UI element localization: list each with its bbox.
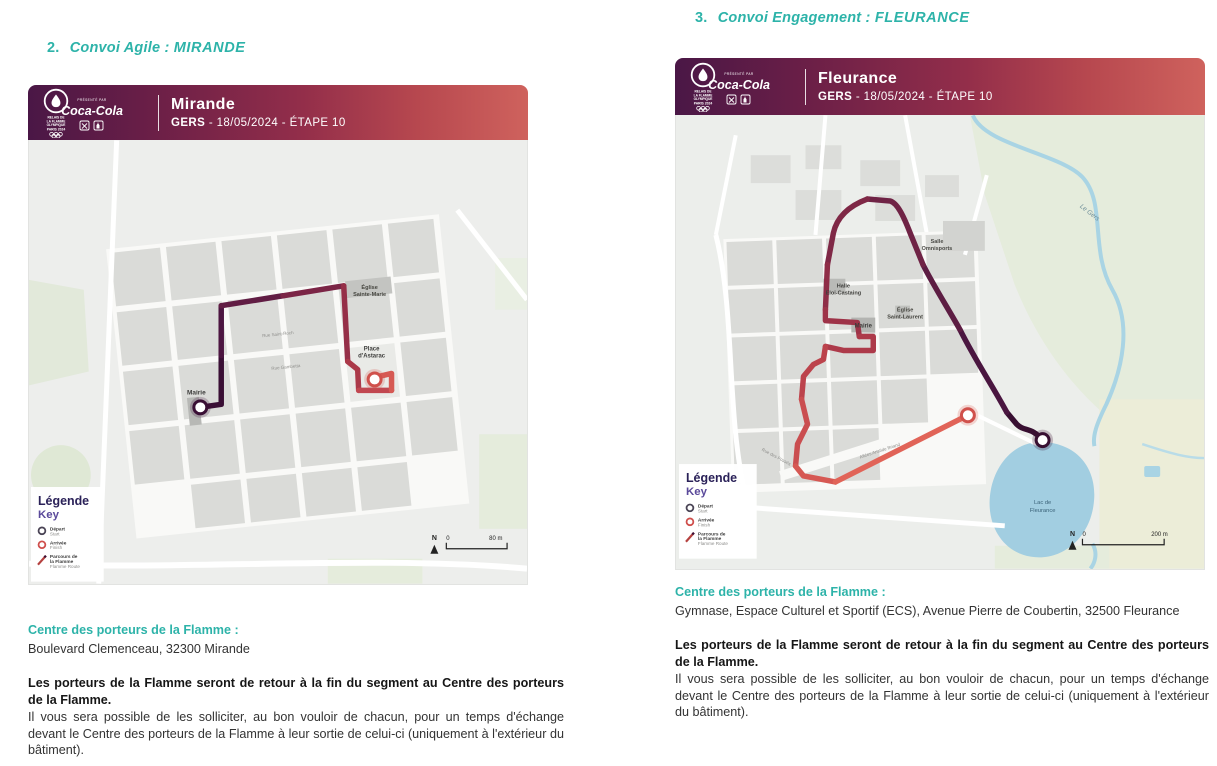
banner-dept: GERS [818, 91, 852, 103]
label-eglise: Sainte-Marie [353, 292, 386, 298]
scale-max: 80 m [489, 536, 502, 542]
label-salle: Salle [931, 239, 944, 245]
label-place: d'Astarac [358, 354, 386, 360]
bottle-icon [744, 96, 747, 102]
logo-text-paris: PARIS 2024 [47, 127, 66, 131]
heading-label: Convoi Agile : [70, 40, 170, 56]
legend-item-en: Flamme Route [698, 541, 728, 546]
map-fleurance: Salle Omnisports Halle Eloi-Castaing Égl… [675, 115, 1205, 570]
presented-by-text: PRÉSENTÉ PAR [77, 97, 106, 102]
banner-date-stage: - 18/05/2024 - ÉTAPE 10 [856, 91, 993, 103]
banner-dept: GERS [171, 117, 205, 129]
cocacola-logo: PRÉSENTÉ PAR Coca-Cola [708, 71, 770, 104]
map-svg-fleurance: Salle Omnisports Halle Eloi-Castaing Égl… [676, 115, 1204, 569]
finish-marker [957, 405, 978, 426]
finish-marker [364, 369, 385, 390]
cross-icon [82, 123, 87, 128]
cross-icon [729, 97, 734, 102]
label-mairie: Mairie [187, 389, 206, 396]
bottle-icon [97, 122, 100, 128]
label-halle: Eloi-Castaing [826, 291, 862, 297]
banner-subtitle: GERS - 18/05/2024 - ÉTAPE 10 [171, 117, 346, 129]
north-label: N [432, 535, 437, 542]
map-legend: Légende Key Départ Start Arrivée Finish … [31, 487, 104, 582]
route-legend-icon-tip [44, 556, 46, 558]
info-body: Il vous sera possible de les solliciter,… [28, 709, 564, 759]
banner-logos: RELAIS DE LA FLAMME OLYMPIQUE PARIS 2024… [687, 62, 797, 112]
heading-number: 3. [695, 10, 708, 26]
map-banner: RELAIS DE LA FLAMME OLYMPIQUE PARIS 2024… [675, 58, 1205, 115]
logo-text-paris: PARIS 2024 [694, 101, 713, 105]
legend-title-en: Key [686, 486, 708, 498]
map-legend: Légende Key Départ Start Arrivée Finish … [679, 464, 757, 559]
info-address: Gymnase, Espace Culturel et Sportif (ECS… [675, 603, 1209, 620]
cocacola-badges [80, 121, 103, 130]
cocacola-script: Coca-Cola [708, 78, 770, 92]
legend-item-en: Finish [698, 522, 711, 527]
legend-title-en: Key [38, 509, 60, 521]
legend-item-en: Start [50, 531, 60, 536]
olympic-rings-icon [697, 106, 710, 112]
flame-icon [699, 68, 708, 81]
town-blocks [106, 214, 469, 538]
label-halle: Halle [837, 284, 850, 290]
legend-item-en: Finish [50, 545, 63, 550]
info-block-mirande: Centre des porteurs de la Flamme : Boule… [28, 622, 564, 759]
map-card-fleurance: RELAIS DE LA FLAMME OLYMPIQUE PARIS 2024… [675, 58, 1205, 570]
banner-city: Fleurance [818, 70, 993, 88]
cocacola-badges [727, 95, 750, 104]
cocacola-logo: PRÉSENTÉ PAR Coca-Cola [61, 97, 123, 130]
label-place: Place [364, 347, 380, 353]
route-legend-icon-tip [692, 533, 694, 535]
banner-logos: RELAIS DE LA FLAMME OLYMPIQUE PARIS 2024… [40, 88, 150, 138]
label-salle: Omnisports [922, 246, 953, 252]
legend-title-fr: Légende [686, 471, 737, 485]
scale-max: 200 m [1151, 532, 1168, 538]
section-heading-mirande: 2. Convoi Agile : MIRANDE [47, 40, 246, 56]
info-bold-note: Les porteurs de la Flamme seront de reto… [28, 675, 564, 708]
banner-divider [805, 69, 806, 105]
legend-item-en: Flamme Route [50, 564, 80, 569]
heading-label: Convoi Engagement : [718, 10, 871, 26]
banner-divider [158, 95, 159, 131]
heading-city: FLEURANCE [875, 10, 970, 26]
info-body: Il vous sera possible de les solliciter,… [675, 671, 1209, 721]
label-lake: Fleurance [1030, 508, 1056, 514]
cocacola-script: Coca-Cola [61, 104, 123, 118]
presented-by-text: PRÉSENTÉ PAR [724, 71, 753, 76]
olympic-rings-icon [50, 132, 63, 138]
legend-item-en: Start [698, 508, 708, 513]
banner-city: Mirande [171, 96, 346, 114]
info-block-fleurance: Centre des porteurs de la Flamme : Gymna… [675, 584, 1209, 721]
start-marker [1032, 430, 1053, 451]
info-title: Centre des porteurs de la Flamme : [675, 584, 1209, 601]
info-title: Centre des porteurs de la Flamme : [28, 622, 564, 639]
label-mairie: Mairie [855, 324, 873, 330]
label-eglise: Église [897, 306, 913, 314]
map-card-mirande: RELAIS DE LA FLAMME OLYMPIQUE PARIS 2024… [28, 85, 528, 585]
section-heading-fleurance: 3. Convoi Engagement : FLEURANCE [695, 10, 970, 26]
label-eglise: Saint-Laurent [887, 315, 923, 321]
label-eglise: Église [361, 283, 377, 291]
north-label: N [1070, 531, 1075, 538]
map-banner: RELAIS DE LA FLAMME OLYMPIQUE PARIS 2024… [28, 85, 528, 140]
banner-date-stage: - 18/05/2024 - ÉTAPE 10 [209, 117, 346, 129]
info-address: Boulevard Clemenceau, 32300 Mirande [28, 641, 564, 658]
map-svg-mirande: Mairie Église Sainte-Marie Place d'Astar… [29, 140, 527, 584]
map-mirande: Mairie Église Sainte-Marie Place d'Astar… [28, 140, 528, 585]
banner-subtitle: GERS - 18/05/2024 - ÉTAPE 10 [818, 91, 993, 103]
legend-title-fr: Légende [38, 494, 89, 508]
heading-number: 2. [47, 40, 60, 56]
flame-icon [52, 94, 61, 107]
info-bold-note: Les porteurs de la Flamme seront de reto… [675, 637, 1209, 670]
label-lake: Lac de [1034, 500, 1051, 506]
heading-city: MIRANDE [174, 40, 246, 56]
document-page: { "colors": { "accent_teal": "#2db3a9", … [0, 0, 1217, 766]
start-marker [190, 397, 211, 418]
